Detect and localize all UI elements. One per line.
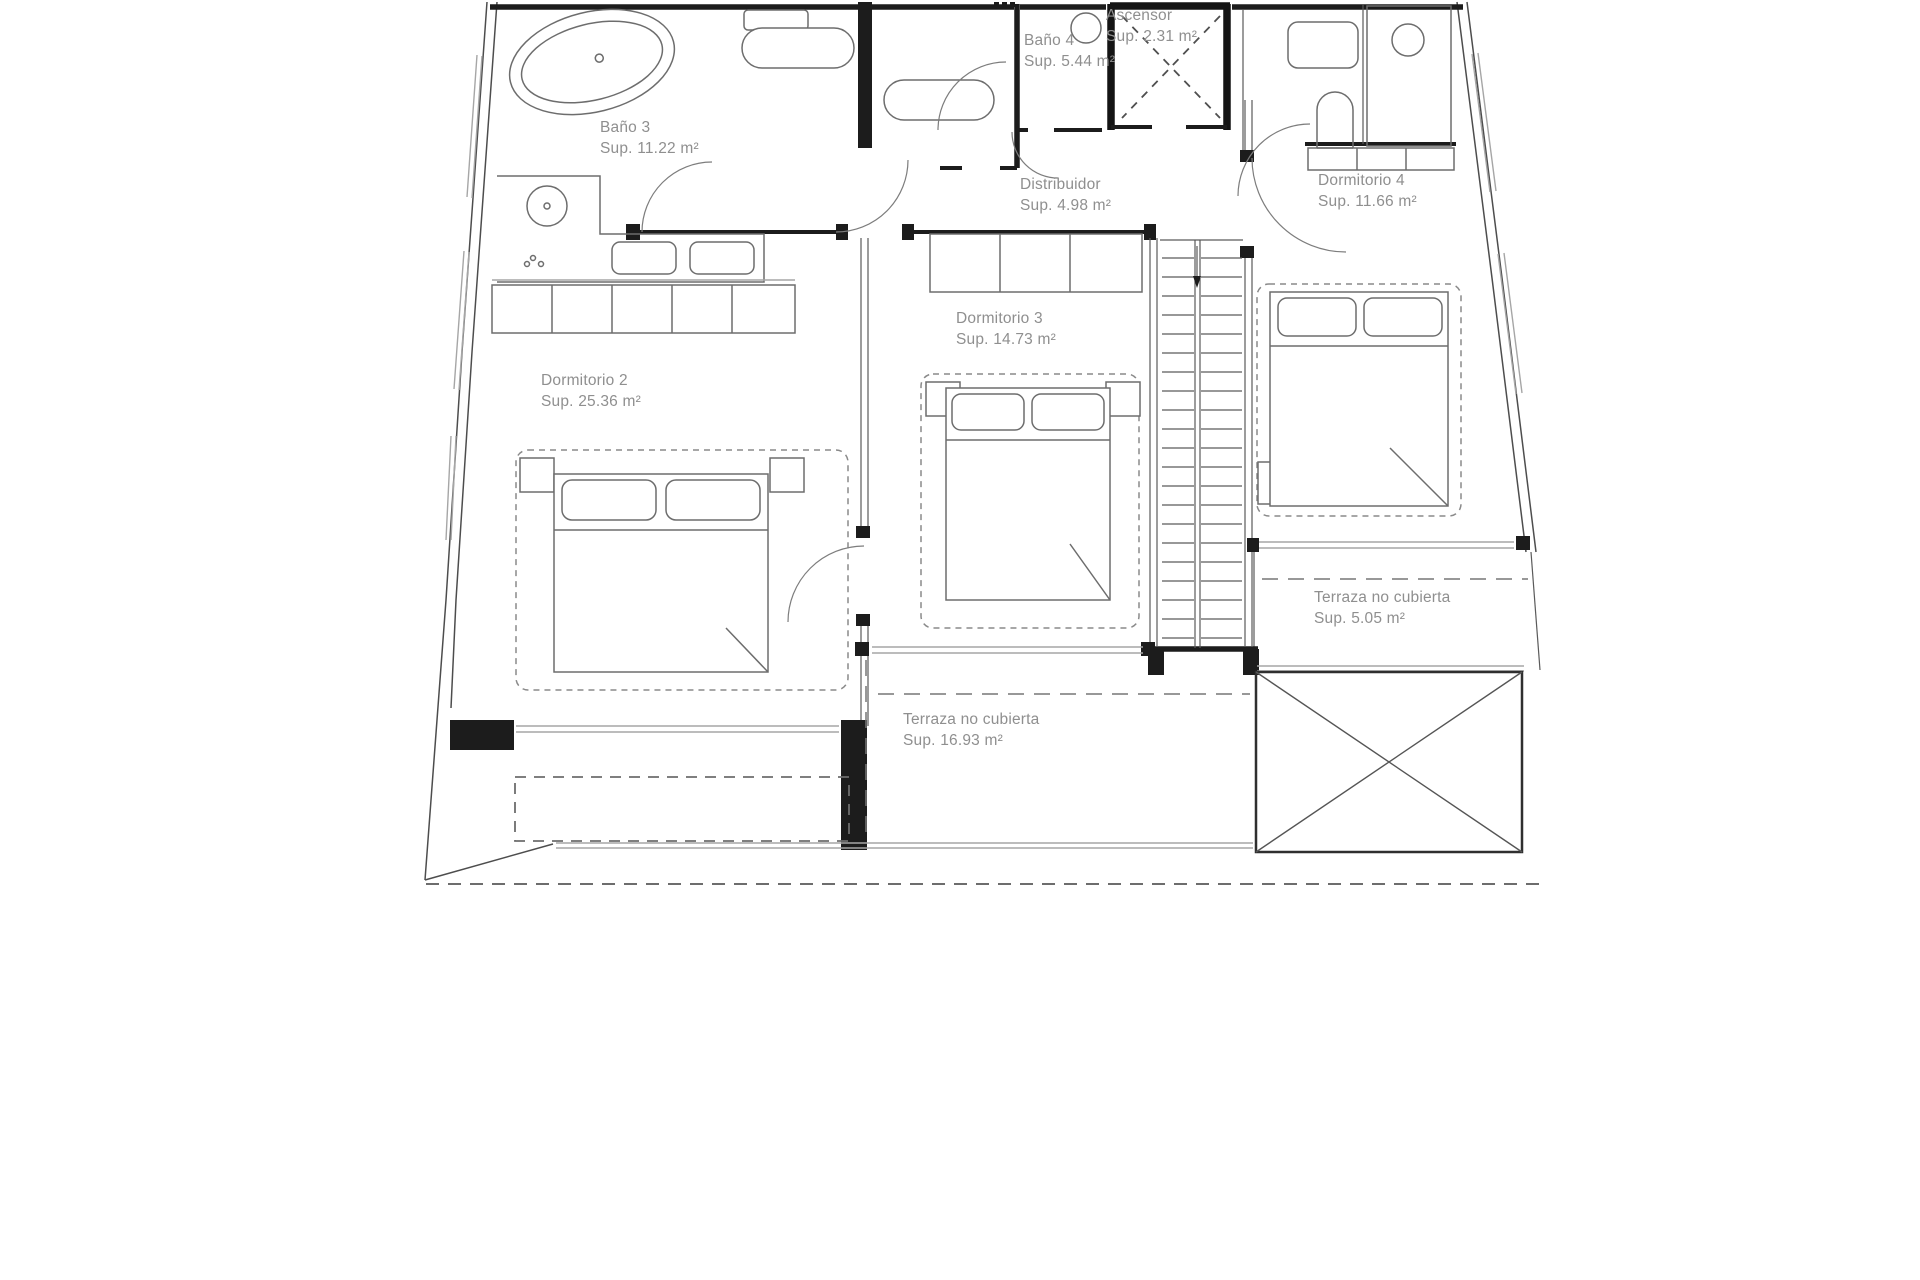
room-area: Sup. 5.05 m² xyxy=(1314,608,1450,629)
room-name: Distribuidor xyxy=(1020,174,1111,195)
door-arc-bano3 xyxy=(642,162,712,232)
room-area: Sup. 11.22 m² xyxy=(600,138,699,159)
room-area: Sup. 14.73 m² xyxy=(956,329,1056,350)
room-area: Sup. 11.66 m² xyxy=(1318,191,1417,212)
floor-plan-drawing xyxy=(0,0,1920,1280)
pillow xyxy=(1278,298,1356,336)
room-label-dormitorio3: Dormitorio 3 Sup. 14.73 m² xyxy=(956,308,1056,350)
room-name: Dormitorio 4 xyxy=(1318,170,1417,191)
bed-dormitorio-4 xyxy=(1258,292,1448,506)
wardrobe-dorm3 xyxy=(930,234,1142,292)
dorm4-bathroom xyxy=(1288,6,1451,148)
room-label-dormitorio4: Dormitorio 4 Sup. 11.66 m² xyxy=(1318,170,1417,212)
room-area: Sup. 25.36 m² xyxy=(541,391,641,412)
door-arc-dorm3 xyxy=(836,160,908,232)
room-label-dormitorio2: Dormitorio 2 Sup. 25.36 m² xyxy=(541,370,641,412)
bathtub xyxy=(498,0,685,131)
room-name: Baño 3 xyxy=(600,117,699,138)
room-name: Terraza no cubierta xyxy=(1314,587,1450,608)
room-label-bano3: Baño 3 Sup. 11.22 m² xyxy=(600,117,699,159)
wardrobe-dorm2 xyxy=(492,280,795,333)
pillow xyxy=(666,480,760,520)
room-area: Sup. 4.98 m² xyxy=(1020,195,1111,216)
vanity-counter xyxy=(1367,6,1451,146)
pillow xyxy=(1032,394,1104,430)
room-label-bano4: Baño 4 Sup. 5.44 m² xyxy=(1024,30,1115,72)
bed-dormitorio-2 xyxy=(520,458,804,672)
nightstand xyxy=(770,458,804,492)
room-label-distribuidor: Distribuidor Sup. 4.98 m² xyxy=(1020,174,1111,216)
wardrobe-dorm4 xyxy=(1308,148,1454,170)
room-area: Sup. 5.44 m² xyxy=(1024,51,1115,72)
room-name: Ascensor xyxy=(1106,5,1197,26)
round-sink xyxy=(1392,24,1424,56)
shower-fixture xyxy=(1317,92,1353,148)
room-area: Sup. 2.31 m² xyxy=(1106,26,1197,47)
room-name: Terraza no cubierta xyxy=(903,709,1039,730)
toilet xyxy=(1288,22,1358,68)
room-label-ascensor: Ascensor Sup. 2.31 m² xyxy=(1106,5,1197,47)
room-name: Dormitorio 2 xyxy=(541,370,641,391)
room-name: Dormitorio 3 xyxy=(956,308,1056,329)
door-arc-dorm2 xyxy=(788,546,864,622)
bed-dormitorio-3 xyxy=(926,382,1140,600)
pillow xyxy=(1364,298,1442,336)
room-name: Baño 4 xyxy=(1024,30,1115,51)
round-sink xyxy=(527,186,567,226)
pillow xyxy=(562,480,656,520)
staircase xyxy=(1160,240,1243,648)
bidet xyxy=(884,80,994,120)
room-label-terraza5: Terraza no cubierta Sup. 5.05 m² xyxy=(1314,587,1450,629)
terrace-dashed-rect xyxy=(515,777,849,841)
basin-sink xyxy=(612,242,676,274)
floor-plan-page: Baño 3 Sup. 11.22 m² Baño 4 Sup. 5.44 m²… xyxy=(0,0,1920,1280)
skylight-x-square xyxy=(1256,672,1522,852)
nightstand xyxy=(1106,382,1140,416)
basin-sink xyxy=(690,242,754,274)
room-label-terraza16: Terraza no cubierta Sup. 16.93 m² xyxy=(903,709,1039,751)
top-walls xyxy=(490,2,1463,7)
pillow xyxy=(952,394,1024,430)
toilet xyxy=(742,10,854,68)
nightstand xyxy=(520,458,554,492)
wc-partition-wall xyxy=(858,2,872,148)
room-area: Sup. 16.93 m² xyxy=(903,730,1039,751)
